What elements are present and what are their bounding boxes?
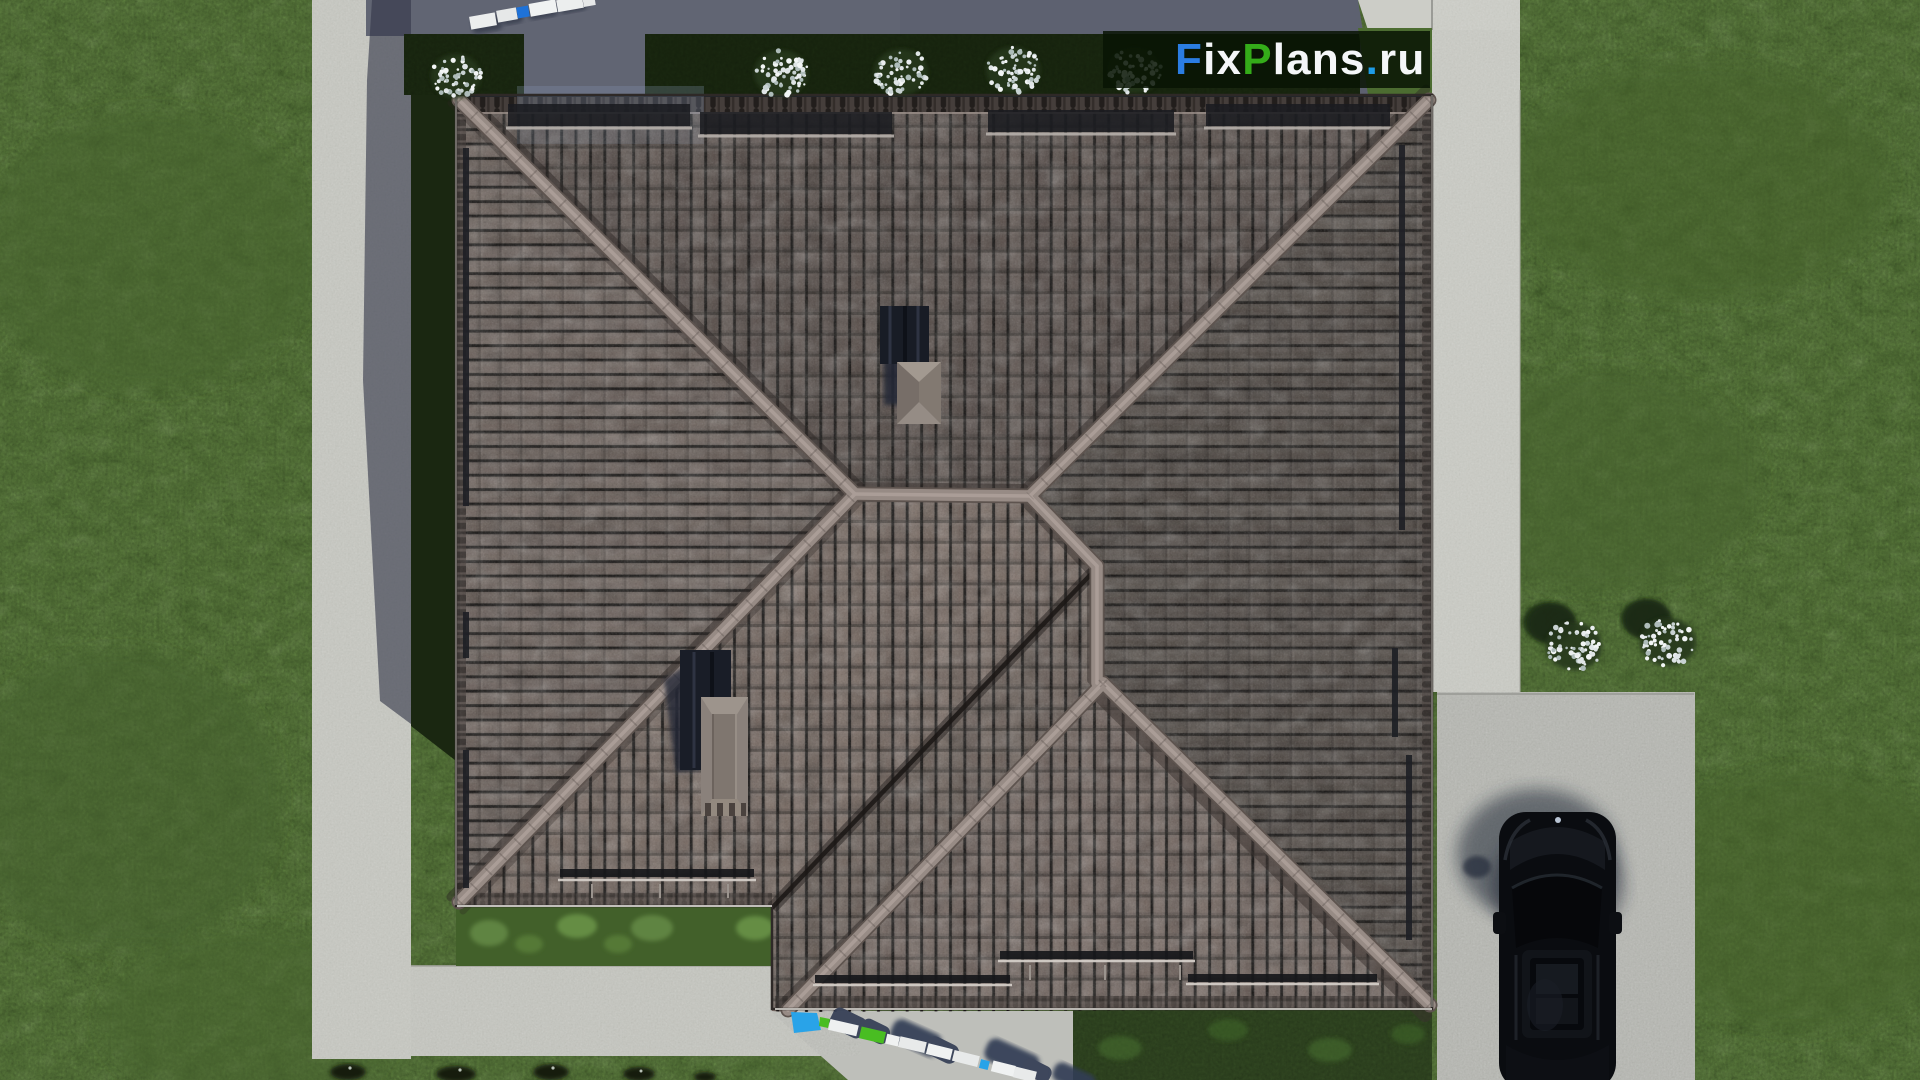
- svg-text:FixPlans.ru: FixPlans.ru: [1175, 35, 1425, 84]
